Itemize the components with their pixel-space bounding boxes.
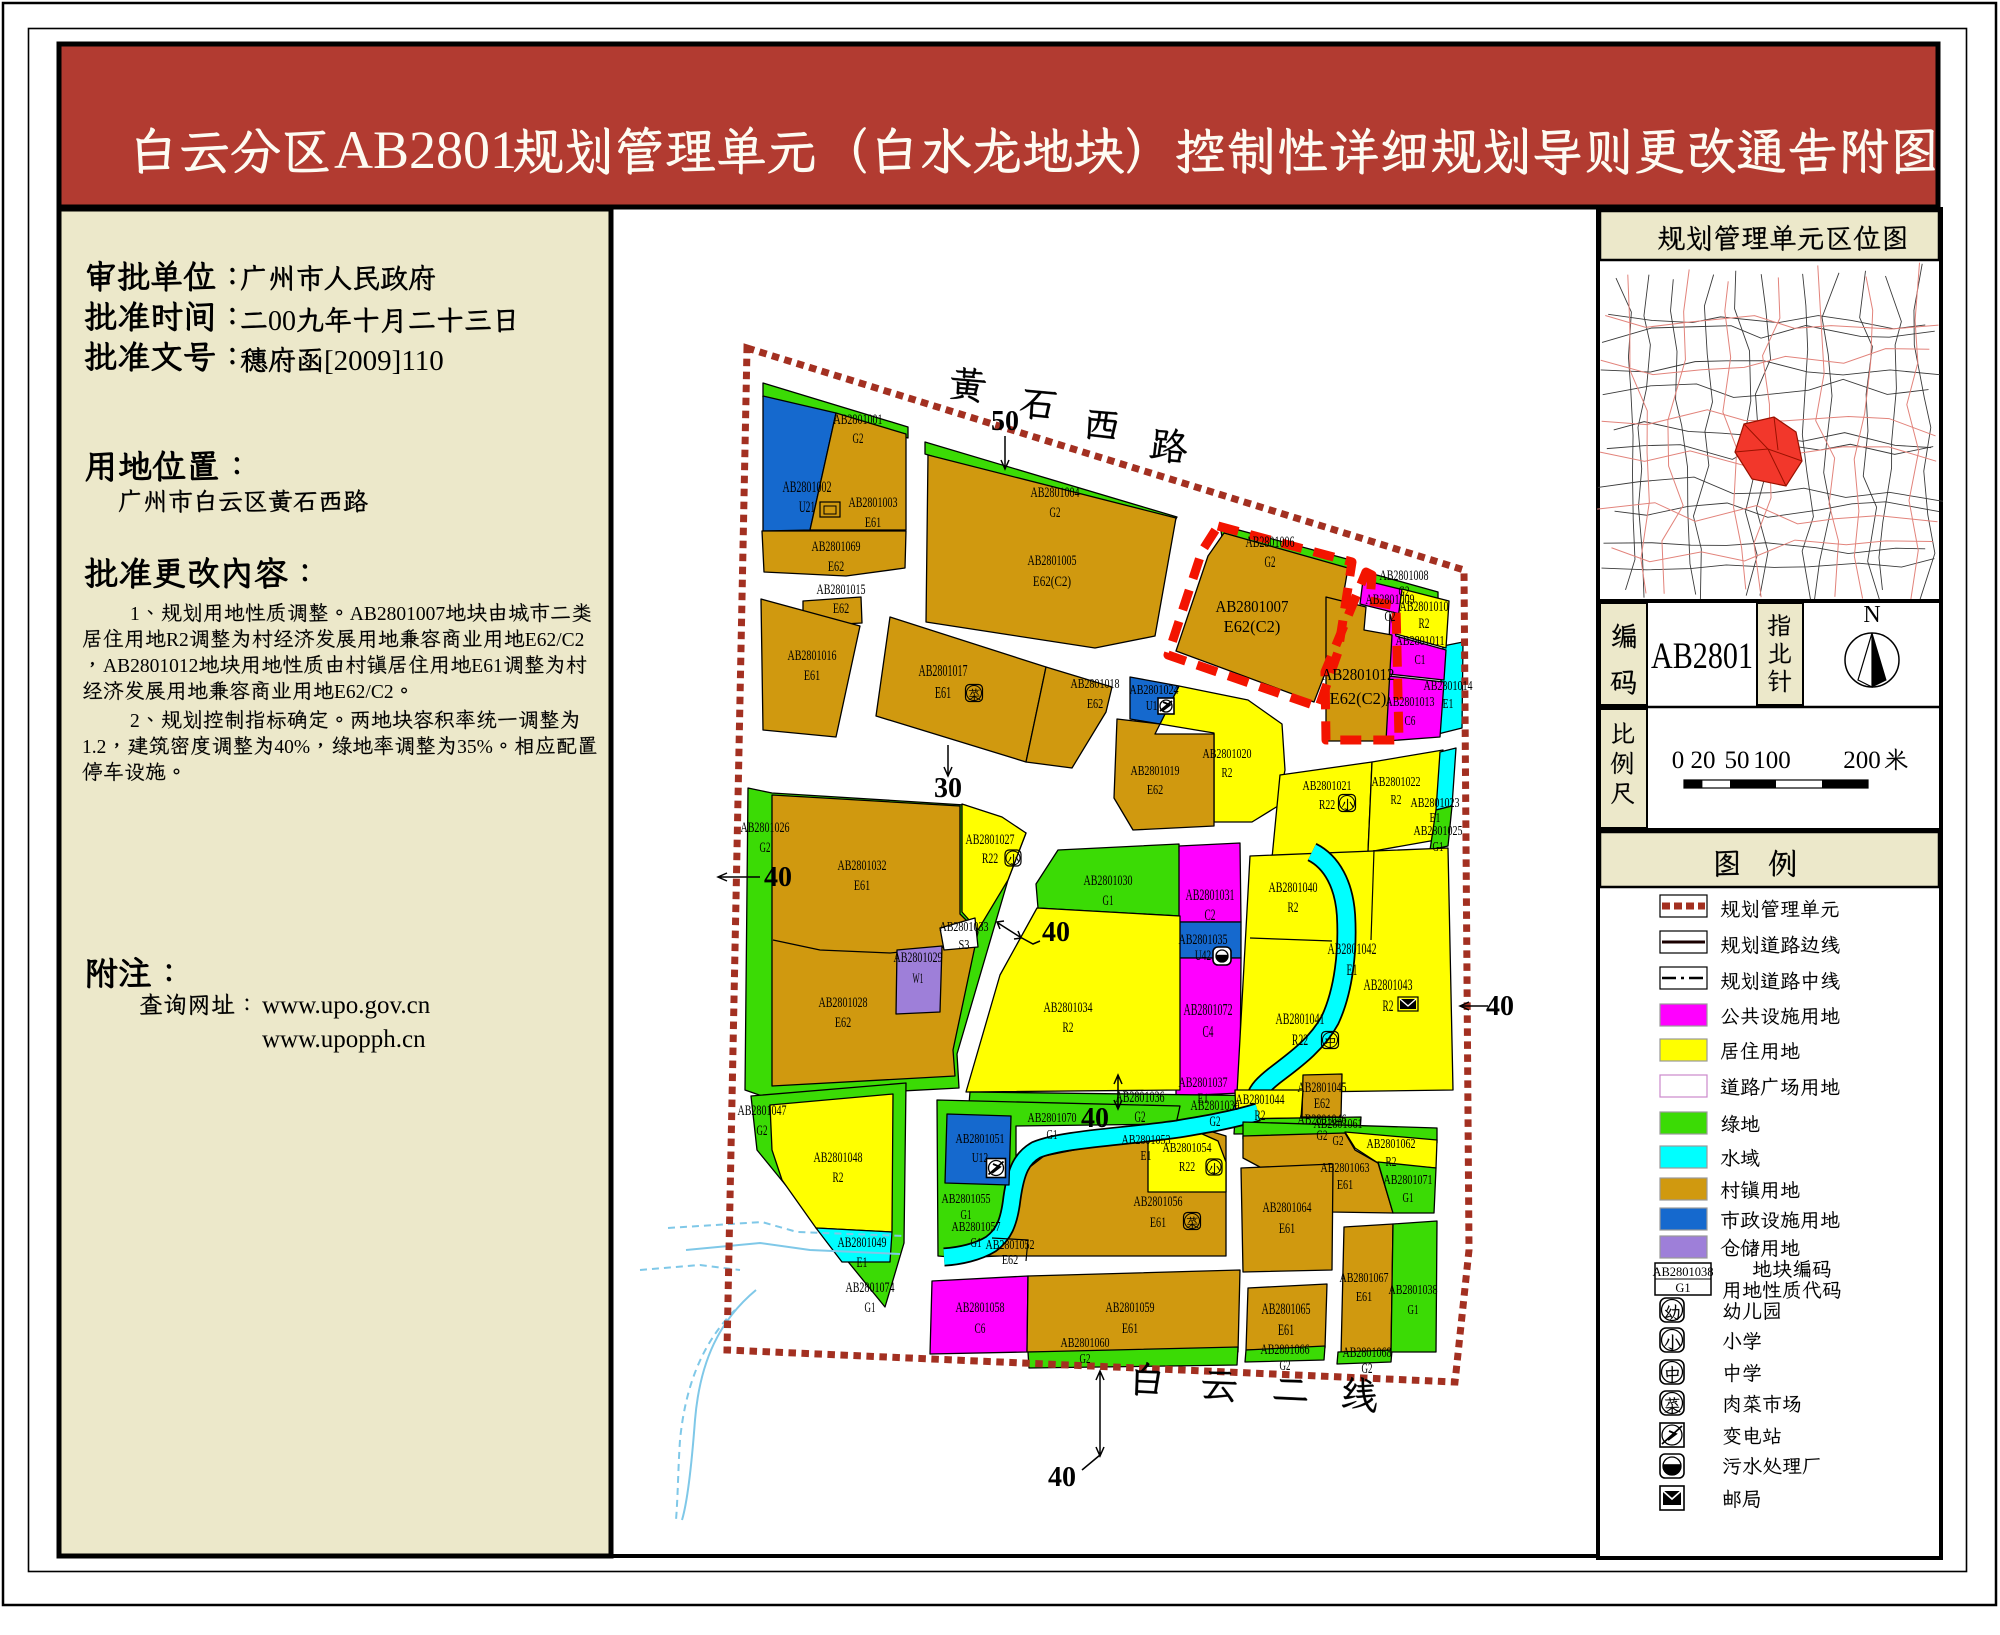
svg-text:AB2801025: AB2801025 <box>1413 823 1462 838</box>
svg-text:AB2801028: AB2801028 <box>818 995 867 1011</box>
svg-text:C2: C2 <box>1205 907 1216 924</box>
svg-text:E61: E61 <box>1356 1289 1372 1304</box>
svg-text:AB2801060: AB2801060 <box>1060 1335 1109 1350</box>
svg-text:20: 20 <box>1691 747 1716 774</box>
svg-text:G2: G2 <box>1333 1133 1344 1148</box>
svg-text:U42: U42 <box>1195 948 1211 964</box>
svg-text:AB2801069: AB2801069 <box>811 539 860 555</box>
svg-text:E61: E61 <box>1150 1215 1166 1231</box>
svg-text:E61: E61 <box>854 878 870 894</box>
svg-text:[2009]110: [2009]110 <box>324 345 444 377</box>
svg-text:AB2801027: AB2801027 <box>965 832 1014 848</box>
svg-text:40: 40 <box>1081 1103 1109 1134</box>
svg-text:C2: C2 <box>1385 609 1396 625</box>
svg-text:AB2801022: AB2801022 <box>1371 774 1420 789</box>
svg-text:AB2801024: AB2801024 <box>1129 682 1178 697</box>
svg-text:AB2801072: AB2801072 <box>1183 1000 1232 1019</box>
svg-text:0: 0 <box>1672 747 1685 774</box>
svg-text:50: 50 <box>991 406 1019 437</box>
svg-text:AB2801012: AB2801012 <box>1322 665 1395 684</box>
svg-text:G1: G1 <box>1103 893 1114 909</box>
svg-text:G1: G1 <box>1047 1127 1058 1142</box>
svg-text:G2: G2 <box>1362 1361 1373 1377</box>
svg-text:AB2801056: AB2801056 <box>1133 1194 1182 1210</box>
svg-text:R2: R2 <box>1063 1020 1074 1036</box>
svg-text:AB2801045: AB2801045 <box>1297 1080 1346 1096</box>
svg-text:R2: R2 <box>1391 792 1402 807</box>
svg-text:R22: R22 <box>1319 797 1335 812</box>
svg-text:E61: E61 <box>865 515 881 531</box>
svg-text:AB2801013: AB2801013 <box>1385 694 1434 709</box>
svg-text:AB2801038: AB2801038 <box>1652 1265 1713 1279</box>
svg-text:AB2801039: AB2801039 <box>1190 1098 1239 1114</box>
svg-text:1: 1 <box>130 604 140 625</box>
svg-text:AB2801070: AB2801070 <box>1027 1110 1076 1125</box>
svg-text:C6: C6 <box>975 1321 986 1337</box>
svg-text:AB2801047: AB2801047 <box>737 1103 786 1119</box>
svg-text:C1: C1 <box>1415 652 1426 667</box>
svg-text:G2: G2 <box>1265 554 1276 571</box>
svg-text:E62(C2): E62(C2) <box>1033 574 1071 590</box>
svg-text:G2: G2 <box>1135 1109 1146 1126</box>
svg-text:AB2801019: AB2801019 <box>1130 763 1179 778</box>
svg-text:G2: G2 <box>1050 505 1061 521</box>
svg-text:E62: E62 <box>1147 782 1163 797</box>
svg-text:AB2801038: AB2801038 <box>1388 1282 1437 1297</box>
svg-text:E62/C2: E62/C2 <box>334 682 394 703</box>
svg-text:35%: 35% <box>457 737 493 758</box>
svg-text:AB2801055: AB2801055 <box>941 1191 990 1206</box>
svg-text:AB2801001: AB2801001 <box>833 412 882 428</box>
svg-text:AB2801057: AB2801057 <box>951 1219 1000 1234</box>
svg-text:AB2801031: AB2801031 <box>1185 887 1234 904</box>
svg-text:1.2: 1.2 <box>82 737 106 758</box>
svg-text:E62(C2): E62(C2) <box>1330 689 1387 708</box>
svg-text:AB2801044: AB2801044 <box>1235 1092 1285 1108</box>
svg-text:50: 50 <box>1725 747 1750 774</box>
svg-text:E62: E62 <box>835 1015 851 1031</box>
svg-text:AB2801042: AB2801042 <box>1327 941 1376 958</box>
svg-text:C6: C6 <box>1405 713 1416 728</box>
svg-text:AB2801065: AB2801065 <box>1261 1301 1310 1318</box>
svg-text:AB2801068: AB2801068 <box>1342 1345 1391 1361</box>
svg-text:R2: R2 <box>833 1170 844 1186</box>
svg-text:G1: G1 <box>1433 839 1444 854</box>
svg-text:AB2801051: AB2801051 <box>955 1131 1004 1146</box>
svg-text:G2: G2 <box>1080 1351 1091 1366</box>
svg-text:R2: R2 <box>1255 1108 1266 1124</box>
svg-text:R2: R2 <box>1419 616 1430 632</box>
svg-text:200: 200 <box>1843 747 1881 774</box>
svg-text:AB2801034: AB2801034 <box>1043 1000 1092 1016</box>
svg-text:G2: G2 <box>1280 1358 1291 1374</box>
svg-text:E62: E62 <box>1314 1096 1330 1112</box>
svg-text:AB2801063: AB2801063 <box>1320 1160 1369 1175</box>
svg-text:AB2801005: AB2801005 <box>1027 553 1076 569</box>
svg-text:G2: G2 <box>1210 1114 1221 1130</box>
svg-text:AB2801071: AB2801071 <box>1383 1172 1432 1187</box>
svg-text:AB2801018: AB2801018 <box>1070 676 1119 691</box>
svg-text:AB2801035: AB2801035 <box>1178 932 1227 948</box>
svg-text:2: 2 <box>130 711 140 732</box>
svg-text:R2: R2 <box>1222 765 1233 780</box>
svg-text:AB2801033: AB2801033 <box>939 919 988 934</box>
svg-text:E61: E61 <box>471 656 502 677</box>
svg-text:W1: W1 <box>913 971 924 987</box>
svg-text:AB2801008: AB2801008 <box>1379 568 1428 584</box>
svg-text:AB2801064: AB2801064 <box>1262 1200 1312 1216</box>
svg-text:E61: E61 <box>1278 1322 1294 1339</box>
svg-text:AB2801002: AB2801002 <box>782 479 831 496</box>
svg-text:E61: E61 <box>1122 1321 1138 1337</box>
svg-text:AB2801032: AB2801032 <box>837 858 886 874</box>
svg-text:R22: R22 <box>1179 1159 1195 1174</box>
svg-text:E1: E1 <box>1443 696 1454 711</box>
svg-text:AB2801021: AB2801021 <box>1302 778 1351 793</box>
svg-text:AB2801: AB2801 <box>334 120 517 180</box>
svg-text:E61: E61 <box>804 668 820 684</box>
svg-text:AB2801017: AB2801017 <box>918 661 967 680</box>
svg-text:E61: E61 <box>1279 1221 1295 1237</box>
svg-text:E61: E61 <box>935 683 951 702</box>
svg-text:S3: S3 <box>959 937 970 952</box>
svg-text:E62: E62 <box>1002 1252 1018 1267</box>
svg-text:R2: R2 <box>1386 1154 1397 1169</box>
svg-text:G2: G2 <box>760 840 771 856</box>
svg-text:40: 40 <box>1486 991 1514 1022</box>
svg-text:E1: E1 <box>1347 962 1358 979</box>
svg-text:AB2801058: AB2801058 <box>955 1300 1004 1316</box>
svg-text:AB2801067: AB2801067 <box>1339 1270 1388 1285</box>
svg-text:G1: G1 <box>865 1300 876 1316</box>
svg-text:AB2801061: AB2801061 <box>1313 1116 1362 1131</box>
svg-text:E62: E62 <box>833 601 849 617</box>
svg-text:40: 40 <box>1048 1462 1076 1493</box>
svg-text:www.upo.gov.cn: www.upo.gov.cn <box>262 992 431 1019</box>
svg-text:AB2801062: AB2801062 <box>1366 1136 1415 1151</box>
svg-text:www.upopph.cn: www.upopph.cn <box>262 1026 426 1053</box>
svg-text:R2: R2 <box>1288 900 1299 916</box>
svg-text:E62/C2: E62/C2 <box>525 630 585 651</box>
svg-text:AB2801007: AB2801007 <box>350 604 446 625</box>
svg-text:U21: U21 <box>799 499 815 516</box>
svg-text:R2: R2 <box>1383 998 1394 1015</box>
svg-text:AB2801052: AB2801052 <box>985 1237 1034 1252</box>
svg-text:AB2801049: AB2801049 <box>837 1235 886 1251</box>
svg-text:40: 40 <box>1042 917 1070 948</box>
svg-text:G2: G2 <box>853 431 864 447</box>
svg-text:G1: G1 <box>971 1235 982 1250</box>
svg-text:E62: E62 <box>1087 696 1103 711</box>
svg-text:AB2801066: AB2801066 <box>1260 1342 1309 1358</box>
svg-text:R22: R22 <box>1292 1032 1308 1049</box>
svg-text:E62(C2): E62(C2) <box>1224 617 1281 636</box>
svg-text:40%: 40% <box>274 737 310 758</box>
svg-text:AB2801036: AB2801036 <box>1115 1089 1164 1106</box>
svg-text:00: 00 <box>268 306 296 337</box>
svg-text:E61: E61 <box>1337 1177 1353 1192</box>
svg-text:AB2801023: AB2801023 <box>1410 795 1459 810</box>
svg-text:AB2801026: AB2801026 <box>740 820 789 836</box>
svg-text:G1: G1 <box>1675 1281 1690 1295</box>
svg-text:C4: C4 <box>1203 1022 1214 1041</box>
svg-text:AB2801010: AB2801010 <box>1399 599 1448 615</box>
svg-text:E62: E62 <box>828 559 844 575</box>
svg-text:AB2801020: AB2801020 <box>1202 746 1251 761</box>
svg-text:AB2801007: AB2801007 <box>1216 597 1289 616</box>
svg-text:AB2801041: AB2801041 <box>1275 1011 1324 1028</box>
svg-text:AB2801037: AB2801037 <box>1178 1075 1227 1091</box>
svg-text:AB2801: AB2801 <box>1651 636 1753 677</box>
svg-text:R22: R22 <box>982 851 998 867</box>
svg-text:AB2801059: AB2801059 <box>1105 1300 1154 1316</box>
svg-text:AB2801003: AB2801003 <box>848 495 897 511</box>
svg-text:AB2801029: AB2801029 <box>893 950 942 966</box>
svg-text:AB2801016: AB2801016 <box>787 648 836 664</box>
svg-text:AB2801015: AB2801015 <box>816 582 865 598</box>
svg-text:AB2801074: AB2801074 <box>845 1280 894 1296</box>
svg-text:AB2801011: AB2801011 <box>1395 633 1444 648</box>
svg-text:AB2801054: AB2801054 <box>1162 1140 1211 1155</box>
svg-text:AB2801030: AB2801030 <box>1083 873 1132 889</box>
svg-text:AB2801006: AB2801006 <box>1245 534 1294 551</box>
svg-text:G1: G1 <box>1403 1190 1414 1205</box>
svg-text:N: N <box>1863 602 1880 628</box>
svg-text:AB2801043: AB2801043 <box>1363 977 1412 994</box>
svg-text:R2: R2 <box>166 630 189 651</box>
svg-text:AB2801014: AB2801014 <box>1423 678 1472 693</box>
svg-text:AB2801012: AB2801012 <box>103 656 198 677</box>
svg-text:G1: G1 <box>1408 1302 1419 1317</box>
svg-text:AB2801048: AB2801048 <box>813 1150 862 1166</box>
svg-text:AB2801004: AB2801004 <box>1030 485 1079 501</box>
svg-text:100: 100 <box>1753 747 1791 774</box>
svg-text:G2: G2 <box>757 1123 768 1139</box>
svg-text:AB2801040: AB2801040 <box>1268 880 1317 896</box>
svg-text:E1: E1 <box>1141 1148 1152 1163</box>
svg-text:E1: E1 <box>857 1255 868 1271</box>
svg-text:40: 40 <box>764 862 792 893</box>
